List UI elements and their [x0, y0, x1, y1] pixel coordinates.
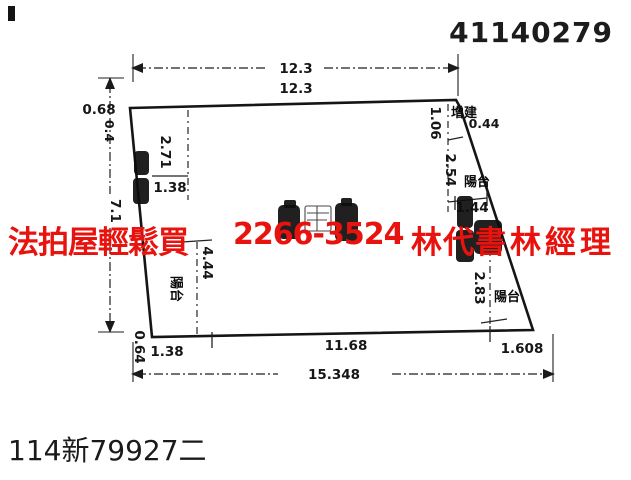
dim-top-overall: 12.3	[279, 61, 312, 77]
watermark-phone: 2266-3524	[233, 217, 403, 252]
dim-bottom-middle: 11.68	[325, 338, 368, 354]
dim-bottom-right: 1.608	[501, 341, 544, 357]
dim-top-left-offset: 0.68	[82, 102, 115, 118]
label-balcony-right-upper: 陽台	[464, 174, 490, 190]
dim-right-upper: 2.54	[442, 153, 458, 186]
dim-bottom-overall: 15.348	[308, 367, 360, 383]
label-annex: 增建	[451, 105, 477, 121]
scanned-plan-page: 41140279 12.3 12.3 0.68 7.1 0.4 2.71 1.3…	[0, 0, 631, 480]
dim-inner-left-depth: 2.71	[157, 135, 173, 168]
dim-balcony-left-depth: 4.44	[199, 246, 215, 279]
watermark-manager: 林經理	[510, 217, 615, 262]
watermark-agent: 林代書	[411, 217, 507, 262]
case-number: 114新79927二	[8, 429, 207, 469]
dim-inner-left-width: 1.38	[153, 180, 186, 196]
dim-top-edge: 12.3	[279, 81, 312, 97]
dim-left-step: 0.4	[102, 120, 117, 142]
label-balcony-left: 陽台	[168, 276, 184, 302]
watermark-ad-text: 法拍屋輕鬆買	[8, 217, 188, 262]
dim-bottom-left: 1.38	[150, 344, 183, 360]
label-balcony-right-lower: 陽台	[494, 289, 520, 305]
dim-right-top: 1.06	[427, 106, 443, 139]
dim-right-lower: 2.83	[471, 271, 487, 304]
